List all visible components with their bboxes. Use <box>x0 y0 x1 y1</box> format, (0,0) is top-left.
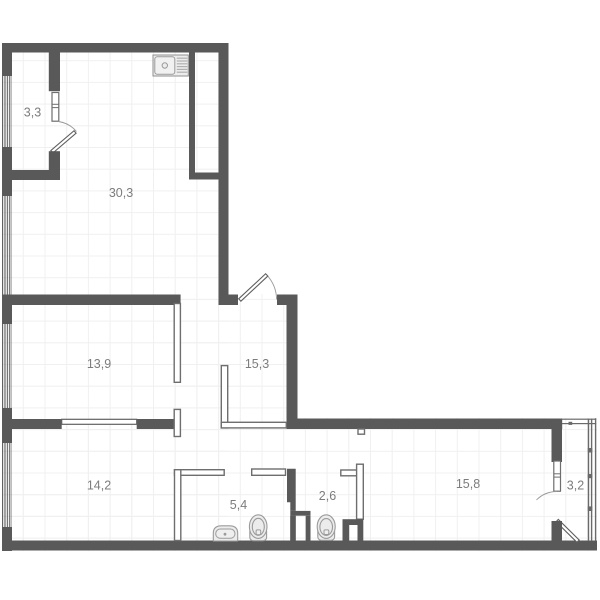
svg-text:2,6: 2,6 <box>319 489 336 503</box>
svg-text:3,3: 3,3 <box>24 106 41 120</box>
svg-text:5,4: 5,4 <box>230 498 247 512</box>
svg-text:15,8: 15,8 <box>456 477 480 491</box>
svg-text:14,2: 14,2 <box>87 479 111 493</box>
svg-text:15,3: 15,3 <box>245 357 269 371</box>
svg-text:30,3: 30,3 <box>109 186 133 200</box>
svg-text:3,2: 3,2 <box>567 478 584 492</box>
svg-text:13,9: 13,9 <box>87 357 111 371</box>
